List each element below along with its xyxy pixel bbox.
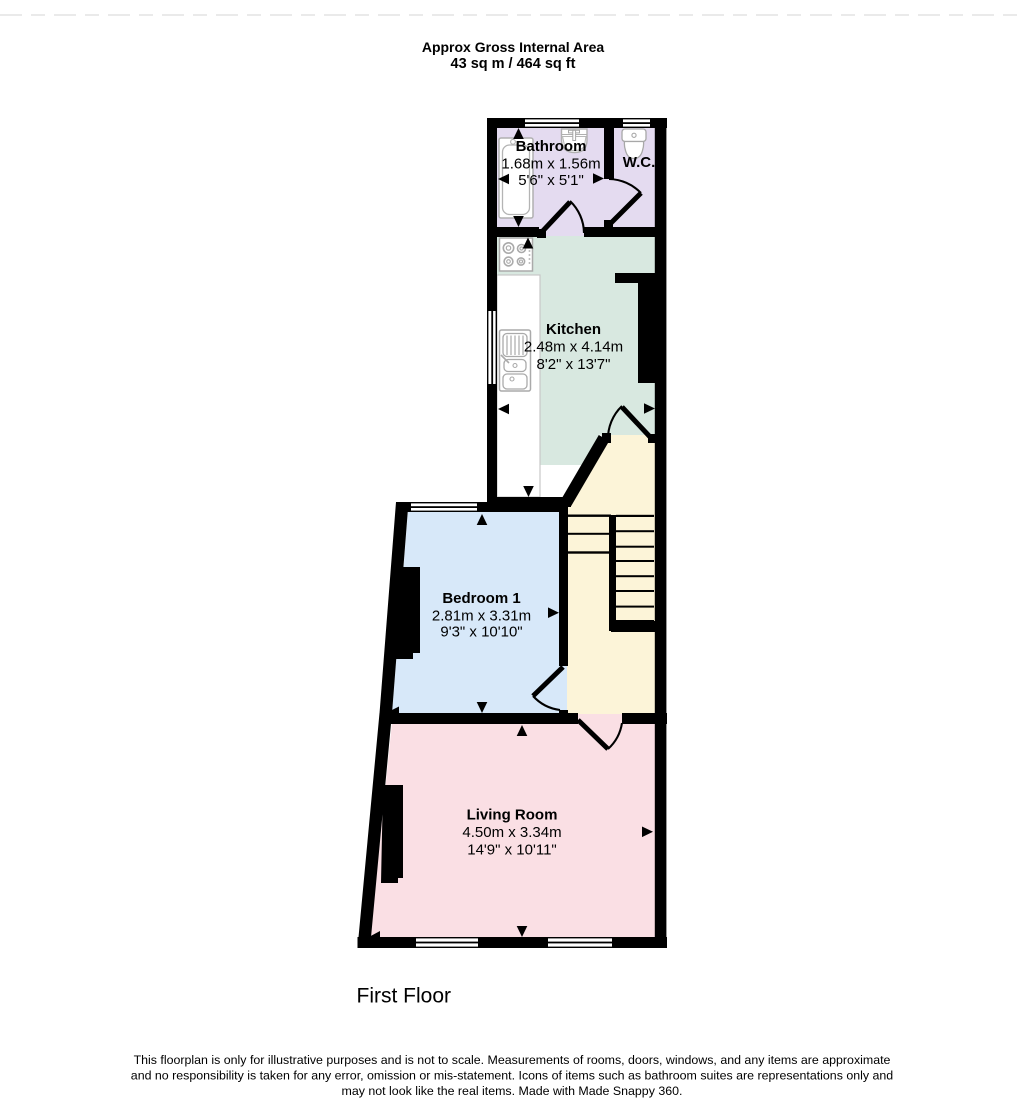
svg-text:Approx Gross Internal Area: Approx Gross Internal Area [422,39,605,55]
svg-text:5'6" x 5'1": 5'6" x 5'1" [518,172,584,189]
svg-text:Bedroom 1: Bedroom 1 [442,590,520,607]
svg-text:First Floor: First Floor [357,985,452,1008]
svg-text:and no responsibility is taken: and no responsibility is taken for any e… [131,1069,893,1083]
svg-text:This floorplan is only for ill: This floorplan is only for illustrative … [134,1053,891,1067]
svg-text:Bathroom: Bathroom [516,138,587,155]
svg-text:W.C.: W.C. [623,154,656,171]
svg-text:9'3" x 10'10": 9'3" x 10'10" [440,624,522,641]
svg-text:1.68m x 1.56m: 1.68m x 1.56m [501,156,600,173]
svg-text:Kitchen: Kitchen [546,321,601,338]
svg-text:14'9" x 10'11": 14'9" x 10'11" [467,842,557,859]
svg-text:4.50m x 3.34m: 4.50m x 3.34m [462,824,561,841]
svg-text:8'2" x 13'7": 8'2" x 13'7" [537,356,611,373]
svg-text:43 sq m / 464 sq ft: 43 sq m / 464 sq ft [451,56,576,72]
svg-text:may not look like the real ite: may not look like the real items. Made w… [342,1084,683,1098]
svg-text:2.48m x 4.14m: 2.48m x 4.14m [524,339,623,356]
svg-text:Living Room: Living Room [467,807,558,824]
svg-text:2.81m x 3.31m: 2.81m x 3.31m [432,608,531,625]
